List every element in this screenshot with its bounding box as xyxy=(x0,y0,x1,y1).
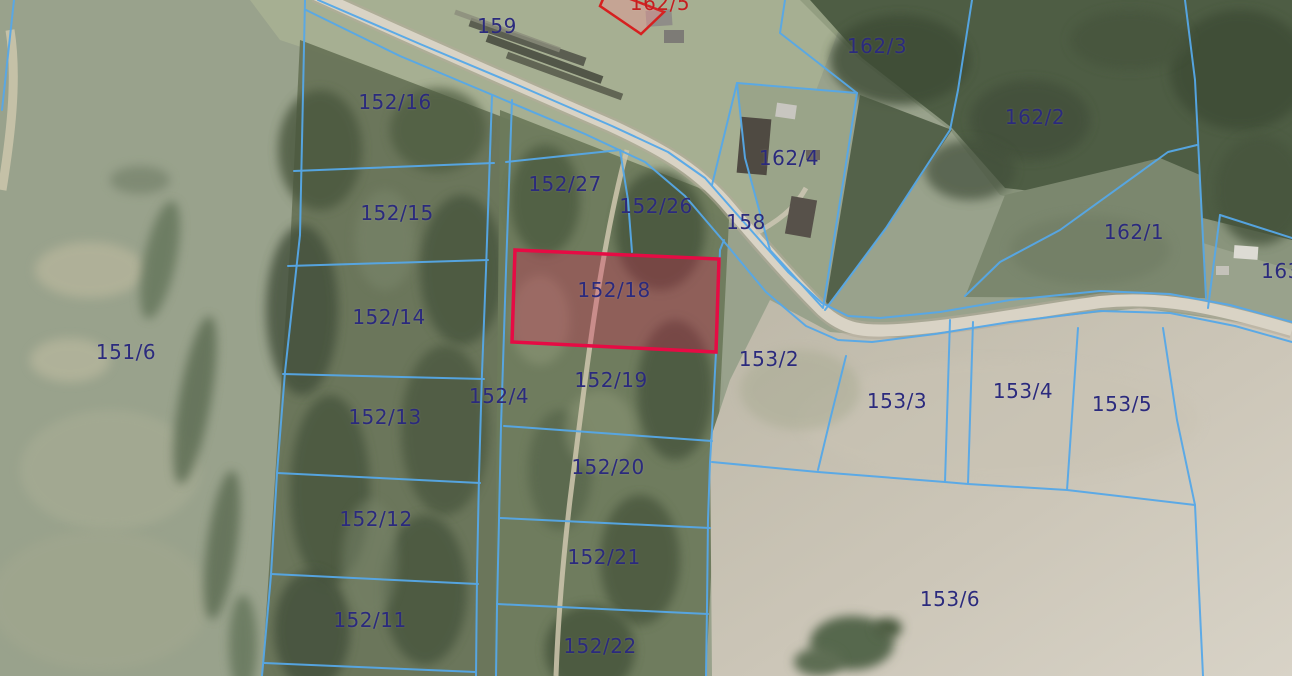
aerial-imagery xyxy=(0,0,1292,676)
map-canvas[interactable]: 159162/5162/3162/2162/4158162/1163152/16… xyxy=(0,0,1292,676)
highlighted-parcel[interactable] xyxy=(512,250,719,352)
